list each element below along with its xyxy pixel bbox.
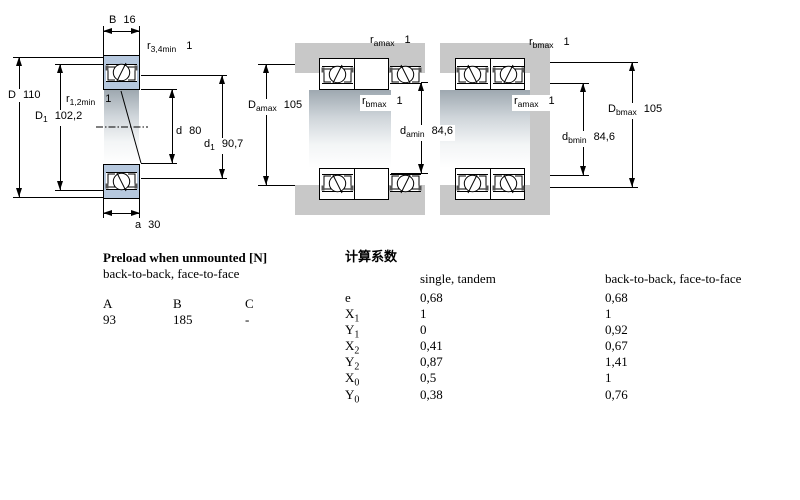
Db-leader-line <box>550 187 638 188</box>
arrowhead-icon <box>580 166 586 175</box>
factor-single-value: 0,5 <box>420 370 436 385</box>
Da-leader-line <box>258 185 295 186</box>
factor-single-value: 0,38 <box>420 387 443 402</box>
dim-label-d1: d190,7 <box>202 138 245 154</box>
housing-shoulder <box>525 58 530 73</box>
d-bore-dimension-line <box>172 89 173 163</box>
bearing-divider <box>354 58 355 90</box>
arrowhead-icon <box>57 181 63 190</box>
factor-single-value: 0,41 <box>420 338 443 353</box>
preload-value-C: - <box>245 312 249 327</box>
bearing-datasheet: B16 a30 D110 D1102,2 d80 <box>0 0 800 500</box>
d1-leader-line <box>55 190 103 191</box>
arrowhead-icon <box>580 83 586 92</box>
arrowhead-icon <box>418 164 424 173</box>
d1-shoulder-leader-line <box>141 178 227 179</box>
bearing-divider <box>490 58 491 90</box>
dim-label-B: B16 <box>107 14 138 27</box>
dim-label-D: D110 <box>6 89 43 102</box>
preload-col-B: B <box>173 296 182 311</box>
factor-paired-value: 0,76 <box>605 387 628 402</box>
Db-leader-line <box>550 62 638 63</box>
housing-shoulder <box>295 185 319 200</box>
preload-col-A: A <box>103 296 112 311</box>
dim-label-Dbmax: Dbmax105 <box>606 103 664 119</box>
dim-label-damin: damin84,6 <box>398 125 455 141</box>
arrowhead-icon <box>629 178 635 187</box>
factors-col-paired: back-to-back, face-to-face <box>605 271 741 286</box>
arrowhead-icon <box>169 154 175 163</box>
factors-col-single: single, tandem <box>420 271 496 286</box>
db-leader-line <box>550 175 589 176</box>
dim-label-d: d80 <box>174 125 203 138</box>
preload-value-B: 185 <box>173 312 193 327</box>
preload-col-C: C <box>245 296 254 311</box>
factor-paired-value: 1 <box>605 370 612 385</box>
bore-leader-line <box>141 163 177 164</box>
arrowhead-icon <box>131 210 140 216</box>
factor-single-value: 1 <box>420 306 427 321</box>
factor-paired-value: 0,68 <box>605 290 628 305</box>
D1-dimension-line <box>60 64 61 190</box>
housing-shoulder <box>440 185 455 200</box>
arrowhead-icon <box>263 64 269 73</box>
d1-shoulder-leader-line <box>141 75 227 76</box>
d1-bore-dimension-line <box>222 75 223 178</box>
Da-dimension-line <box>266 64 267 185</box>
arrowhead-icon <box>57 64 63 73</box>
housing-bottom <box>295 200 425 215</box>
arrowhead-icon <box>103 210 112 216</box>
arrowhead-icon <box>16 57 22 66</box>
bearing-divider <box>490 168 491 200</box>
db-dimension-line <box>583 83 584 175</box>
outer-ring-bottom-section <box>103 164 140 199</box>
arrowhead-icon <box>263 176 269 185</box>
factor-paired-value: 1,41 <box>605 354 628 369</box>
factor-symbol: Y0 <box>345 387 359 408</box>
arrowhead-icon <box>418 82 424 91</box>
factor-single-value: 0,87 <box>420 354 443 369</box>
preload-value-A: 93 <box>103 312 116 327</box>
arrowhead-icon <box>219 75 225 84</box>
factor-single-value: 0,68 <box>420 290 443 305</box>
housing-shoulder <box>389 58 425 73</box>
dim-label-r12: r1,2min1 <box>64 93 113 109</box>
arrowhead-icon <box>103 28 112 34</box>
housing-shoulder <box>440 58 455 73</box>
preload-subtitle: back-to-back, face-to-face <box>103 266 239 281</box>
dim-label-D1: D1102,2 <box>33 110 84 126</box>
factor-paired-value: 0,92 <box>605 322 628 337</box>
dim-label-ramax: ramax1 <box>368 34 413 50</box>
arrowhead-icon <box>219 169 225 178</box>
dim-label-r34: r3,4min1 <box>145 40 194 56</box>
factor-paired-value: 1 <box>605 306 612 321</box>
housing-shoulder <box>525 185 530 200</box>
arrowhead-icon <box>169 89 175 98</box>
dim-label-Damax: Damax105 <box>246 99 304 115</box>
bearing-divider <box>354 168 355 200</box>
d-leader-line <box>13 57 103 58</box>
housing-shoulder <box>389 185 425 200</box>
dim-label-dbmin: dbmin84,6 <box>560 131 617 147</box>
arrowhead-icon <box>629 62 635 71</box>
outer-ring-top-section <box>103 55 140 90</box>
factors-title: 计算系数 <box>345 249 397 264</box>
da-leader-line <box>391 173 428 174</box>
dim-label-rbmax: rbmax1 <box>360 95 405 111</box>
housing-shoulder <box>295 58 319 73</box>
preload-title: Preload when unmounted [N] <box>103 250 267 265</box>
arrowhead-icon <box>131 28 140 34</box>
housing-wall <box>530 58 550 200</box>
dim-label-ramax: ramax1 <box>512 95 557 111</box>
Db-dimension-line <box>632 62 633 187</box>
D-dimension-line <box>19 57 20 197</box>
dim-label-a: a30 <box>133 219 162 232</box>
d-leader-line <box>13 197 103 198</box>
housing-bottom <box>440 200 550 215</box>
arrowhead-icon <box>16 188 22 197</box>
dim-label-rbmax: rbmax1 <box>527 36 572 52</box>
factor-paired-value: 0,67 <box>605 338 628 353</box>
factor-single-value: 0 <box>420 322 427 337</box>
